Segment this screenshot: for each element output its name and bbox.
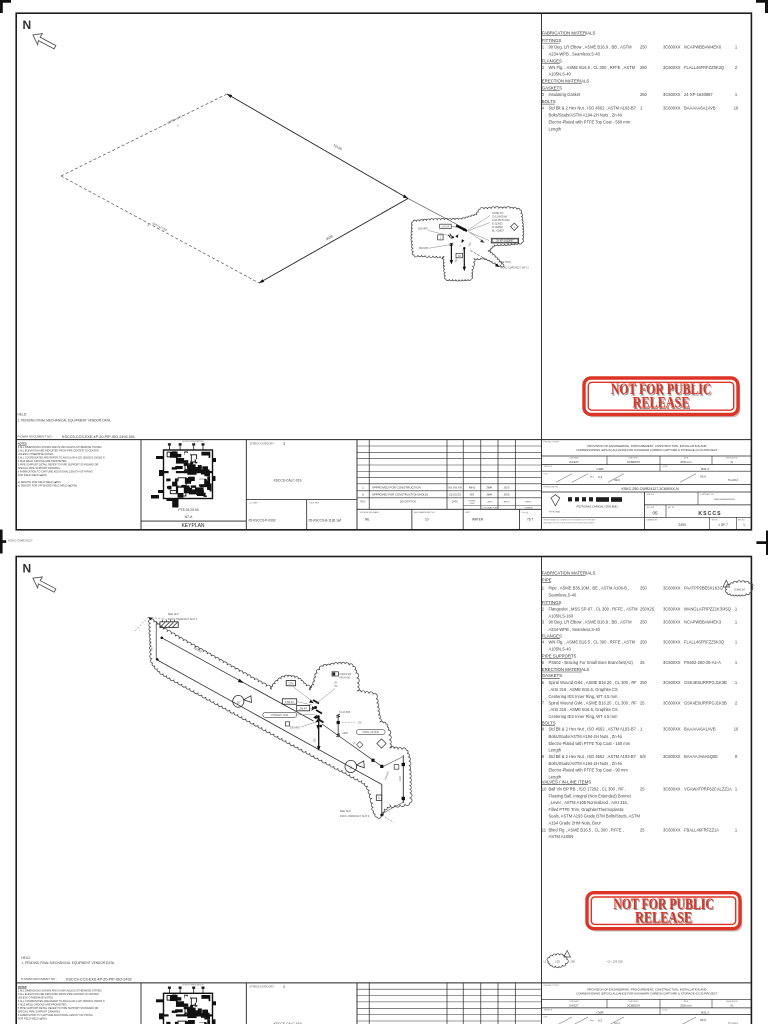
svg-text:Electro-Plated with PTFE Top C: Electro-Plated with PTFE Top Coat - 560 …	[549, 120, 631, 125]
svg-text:VR-24-002: VR-24-002	[339, 678, 351, 680]
svg-text:Std Blt & 2 Hex Nut , ISO 4662: Std Blt & 2 Hex Nut , ISO 4662 , ASTM A1…	[549, 727, 637, 732]
svg-text:FABRICATION MATERIALS: FABRICATION MATERIALS	[542, 571, 596, 576]
svg-text:250: 250	[640, 620, 648, 625]
svg-text:A6: A6	[458, 255, 462, 258]
svg-text:90 Deg. LR Elbow , ASME B16.9: 90 Deg. LR Elbow , ASME B16.9 , BB , AST…	[549, 620, 633, 625]
svg-text:<2> 125 250: <2> 125 250	[607, 960, 623, 964]
svg-text:SHT SIZE: SHT SIZE	[647, 507, 655, 509]
svg-text:SHT NO.: SHT NO.	[712, 519, 719, 521]
svg-text:FLALL46FRFZZ5K3Q: FLALL46FRFZZ5K3Q	[684, 640, 724, 645]
svg-text:CHKD: CHKD	[486, 502, 493, 504]
svg-text:N: N	[731, 460, 733, 464]
svg-text:250: 250	[640, 65, 648, 70]
svg-text:, AISI 316 , ASME B16.5, Graph: , AISI 316 , ASME B16.5, Graphite CS	[549, 707, 618, 712]
svg-text:MHJ: MHJ	[469, 486, 476, 490]
svg-text:b: b	[147, 223, 151, 227]
svg-text:3: 3	[283, 985, 285, 989]
svg-text:3C600XX: 3C600XX	[627, 460, 640, 464]
svg-text:<1: <1	[543, 960, 547, 964]
svg-text:VALVES / IN-LINE ITEMS: VALVES / IN-LINE ITEMS	[542, 780, 591, 785]
svg-text:APPROVED FOR CONSTRUCTION (HOL: APPROVED FOR CONSTRUCTION (HOLD)	[372, 493, 428, 497]
svg-text:ZSM: ZSM	[288, 683, 293, 686]
svg-text:Electro-Plated with PTFE Top C: Electro-Plated with PTFE Top Coat - 90 m…	[549, 768, 629, 773]
svg-text:10: 10	[542, 787, 547, 792]
svg-text:Filled PTFE Trim, Graphite/The: Filled PTFE Trim, Graphite/Thermoplastic	[549, 807, 624, 812]
svg-text:25: 25	[237, 700, 241, 704]
svg-text:A234-WPB , Seamless,S-40: A234-WPB , Seamless,S-40	[549, 627, 601, 632]
svg-text:XX.XX.XX: XX.XX.XX	[448, 486, 462, 490]
svg-text:1219: 1219	[399, 776, 402, 782]
svg-text:PAATPP2BE6X1K3G: PAATPP2BE6X1K3G	[684, 585, 723, 590]
svg-text:FABRICATION MATERIALS: FABRICATION MATERIALS	[542, 31, 596, 36]
svg-text:LV-104: LV-104	[442, 226, 450, 229]
svg-text:GASKETS: GASKETS	[542, 86, 562, 91]
svg-text:P0902_02/1649: P0902_02/1649	[363, 732, 380, 734]
svg-text:250-NPD: 250-NPD	[290, 727, 300, 730]
svg-text:NCAPWBBAW4EK3: NCAPWBBAW4EK3	[684, 620, 722, 625]
svg-text:N 124 583: N 124 583	[339, 711, 351, 714]
svg-text:ZM-4P: ZM-4P	[299, 708, 307, 711]
svg-text:05: 05	[652, 511, 658, 516]
svg-text:FOR FIELD WELD (■FW).: FOR FIELD WELD (■FW).	[18, 474, 48, 477]
svg-text:APPROVED FOR CONSTRUCTION: APPROVED FOR CONSTRUCTION	[372, 486, 421, 490]
svg-text:, AISI 316 , ASME B16.5, Graph: , AISI 316 , ASME B16.5, Graphite CS	[549, 687, 618, 692]
svg-text:P93609/C 1649: P93609/C 1649	[271, 714, 288, 717]
svg-text:2: 2	[542, 65, 545, 70]
svg-text:ERECTION MATERIALS: ERECTION MATERIALS	[542, 79, 590, 84]
svg-text:FLANGES: FLANGES	[542, 634, 562, 639]
svg-text:5: 5	[542, 660, 545, 665]
svg-text:24/127: 24/127	[569, 1003, 579, 1007]
svg-text:AND SHALL NOT BE COPIED WITHOU: AND SHALL NOT BE COPIED WITHOUT PRIOR WR…	[544, 521, 596, 524]
svg-text:UNIT: UNIT	[465, 512, 471, 514]
svg-text:BAAAAJA6A6Q0E: BAAAAJA6A6Q0E	[684, 754, 718, 759]
svg-text:2250: 2250	[343, 732, 349, 735]
svg-text:PROJECT TITLE: PROJECT TITLE	[544, 985, 560, 987]
svg-text:NIL: NIL	[365, 518, 370, 522]
svg-text:25: 25	[640, 660, 645, 665]
svg-text:3C600XX: 3C600XX	[663, 606, 681, 611]
svg-text:Spiral Wound Gskt , ASME B16.2: Spiral Wound Gskt , ASME B16.20 , CL 300…	[549, 680, 638, 685]
svg-text:Bolts/Studs/ASTM A194-2H Nuts: Bolts/Studs/ASTM A194-2H Nuts , Zn-Ni	[549, 734, 622, 739]
svg-text:250-NPD: 250-NPD	[385, 771, 390, 780]
svg-text:GASKETS: GASKETS	[542, 673, 562, 678]
svg-text:250: 250	[640, 640, 648, 645]
svg-text:A194 Grade 2HM Nuts, Bour: A194 Grade 2HM Nuts, Bour	[549, 821, 602, 826]
svg-text:STRESS CATEGORY :: STRESS CATEGORY :	[250, 986, 276, 989]
svg-text:PS602 - Bracing For Small Bore: PS602 - Bracing For Small Bore Branches(…	[549, 660, 634, 665]
svg-text:0.961 M: 0.961 M	[734, 587, 745, 591]
svg-text:3C600XX: 3C600XX	[663, 700, 681, 705]
svg-text:CWR: CWR	[596, 467, 604, 471]
svg-text:3C600XX: 3C600XX	[663, 787, 681, 792]
svg-text:b) DENOTE FOR OFFSHORE FIELD W: b) DENOTE FOR OFFSHORE FIELD WELD (■OFW)…	[18, 485, 78, 488]
svg-text:250: 250	[314, 737, 316, 742]
svg-text:BOLTS: BOLTS	[542, 721, 556, 726]
svg-text:UTS: UTS	[544, 473, 549, 475]
svg-text:25: 25	[640, 827, 645, 832]
svg-text:JGS: JGS	[504, 486, 510, 490]
svg-text:90 Deg. LR Elbow , ASME B16.9: 90 Deg. LR Elbow , ASME B16.9 , BB , AST…	[549, 45, 633, 50]
svg-text:FOR FIELD WELD (■FW).: FOR FIELD WELD (■FW).	[18, 1017, 48, 1020]
svg-text:12150: 12150	[332, 143, 342, 151]
svg-text:WN Flg. , ASME B16.5 , CL 300: WN Flg. , ASME B16.5 , CL 300 , RFFE , A…	[549, 65, 636, 70]
svg-text:8: 8	[542, 727, 545, 732]
svg-text:3C600XX: 3C600XX	[663, 620, 681, 625]
svg-text:25: 25	[349, 766, 353, 770]
svg-text:A105N,S-160: A105N,S-160	[549, 613, 574, 618]
svg-text:PIPING LINE NO: PIPING LINE NO	[544, 487, 559, 489]
svg-text:PETRONAS CARIGALI SDN BHD: PETRONAS CARIGALI SDN BHD	[577, 505, 618, 509]
svg-text:1: 1	[735, 787, 738, 792]
svg-text:Flangeolet , MSS SP-97 , CL 30: Flangeolet , MSS SP-97 , CL 300 , RFFE ,…	[549, 606, 639, 611]
svg-text:175: 175	[358, 721, 363, 724]
svg-text:N: N	[23, 18, 32, 32]
svg-text:250-NPD: 250-NPD	[419, 247, 429, 250]
svg-text:3: 3	[542, 92, 545, 97]
svg-text:JWK: JWK	[486, 493, 492, 497]
svg-text:250 mm: 250 mm	[680, 1003, 692, 1007]
svg-text:THE INFORMATION CONTAINED IN T: THE INFORMATION CONTAINED IN THIS DRAWIN…	[544, 519, 597, 522]
svg-text:N: N	[23, 561, 32, 575]
svg-text:KSCCS: KSCCS	[698, 511, 721, 517]
svg-text:B31.3: B31.3	[701, 467, 709, 471]
svg-text:2: 2	[735, 65, 738, 70]
svg-text:1. PENDING FINAL MECHANICAL EQ: 1. PENDING FINAL MECHANICAL EQUIPMENT VE…	[18, 419, 112, 423]
svg-text:RFP-0000000191/04: RFP-0000000191/04	[714, 499, 735, 501]
svg-text:KSKC-CWR24127 SHT 1: KSKC-CWR24127 SHT 1	[168, 617, 198, 621]
svg-text:KSKC-CWR24127: KSKC-CWR24127	[8, 539, 33, 543]
svg-text:A105N,S-40: A105N,S-40	[549, 647, 572, 652]
svg-text:S: S	[378, 797, 380, 800]
svg-text:ASTM A105N: ASTM A105N	[549, 834, 574, 839]
svg-text:JWK: JWK	[486, 486, 492, 490]
svg-text:HELD:: HELD:	[21, 956, 31, 960]
svg-text:3C600XX: 3C600XX	[663, 640, 681, 645]
svg-text:99.0: 99.0	[614, 478, 620, 482]
svg-text:1: 1	[440, 236, 442, 240]
svg-text:3C600XX: 3C600XX	[663, 660, 681, 665]
svg-text:1: 1	[735, 45, 738, 50]
svg-text:250-NPD: 250-NPD	[418, 228, 428, 231]
svg-text:COMMISSIONING (EPCIC) ALLIANCE: COMMISSIONING (EPCIC) ALLIANCE FOR KASAW…	[576, 448, 718, 452]
svg-text:Electro-Plated with PTFE Top C: Electro-Plated with PTFE Top Coat - 160 …	[549, 741, 631, 746]
svg-text:Floating Ball, Integral (Non E: Floating Ball, Integral (Non Extended) B…	[549, 794, 632, 799]
svg-text:6.2: 6.2	[598, 475, 603, 479]
svg-text:3C600XX: 3C600XX	[663, 45, 681, 50]
svg-text:250 mm: 250 mm	[680, 460, 692, 464]
svg-text:SERVICE: SERVICE	[544, 466, 553, 468]
svg-text:Blind Flg , ASME B16.5 , CL 30: Blind Flg , ASME B16.5 , CL 300 , RFFE ,	[549, 827, 624, 832]
svg-text:FITTINGS: FITTINGS	[542, 600, 562, 605]
svg-text:250: 250	[468, 241, 473, 247]
svg-text:3: 3	[542, 620, 545, 625]
svg-text:DESCRIPTION: DESCRIPTION	[400, 501, 417, 504]
svg-text:CODE: CODE	[662, 1009, 668, 1011]
svg-text:Spiral Wound Gskt , ASME B16.2: Spiral Wound Gskt , ASME B16.20 , CL 300…	[549, 700, 638, 705]
svg-text:Centering IES Inner Ring, WT: Centering IES Inner Ring, WT 4.5 mm	[549, 694, 618, 699]
svg-text:FBALL46FRFZZ1A: FBALL46FRFZZ1A	[684, 827, 719, 832]
svg-text:FLANGES: FLANGES	[542, 59, 562, 64]
svg-text:NC: NC	[334, 686, 338, 688]
svg-text:2: 2	[735, 700, 738, 705]
svg-text:1: 1	[735, 827, 738, 832]
svg-text:6: 6	[542, 680, 545, 685]
svg-text:PROJECT TITLE: PROJECT TITLE	[544, 442, 560, 444]
svg-text:Length: Length	[549, 127, 562, 132]
svg-text:3C600XX: 3C600XX	[663, 92, 681, 97]
svg-text:Bolts/Studs/ASTM A194-2H Nuts: Bolts/Studs/ASTM A194-2H Nuts , Zn-Ni	[549, 761, 622, 766]
svg-text:SEE SHT: SEE SHT	[340, 809, 352, 813]
svg-text:250X25: 250X25	[640, 606, 655, 611]
svg-text:TG-0/0.0: TG-0/0.0	[728, 478, 739, 482]
svg-text:VGAWATPRF62CALZZ1A: VGAWATPRF62CALZZ1A	[684, 787, 732, 792]
svg-text:250: 250	[570, 960, 575, 964]
svg-text:AS-DRAWN REF NO.: AS-DRAWN REF NO.	[414, 511, 436, 514]
svg-text:22.03.23: 22.03.23	[449, 493, 461, 497]
svg-text:7: 7	[542, 700, 545, 705]
svg-text:1: 1	[640, 727, 643, 732]
svg-text:4: 4	[542, 106, 545, 111]
svg-text:JGS: JGS	[504, 493, 510, 497]
svg-text:FILE REF: FILE REF	[310, 503, 320, 505]
svg-text:Std Blt & 2 Hex Nut , ISO 4662: Std Blt & 2 Hex Nut , ISO 4662 , ASTM A1…	[549, 754, 637, 759]
svg-text:x: x	[460, 245, 462, 248]
svg-text:BOLTS: BOLTS	[542, 99, 556, 104]
svg-text:NS: NS	[470, 493, 474, 497]
svg-text:EL +25827: EL +25827	[492, 229, 505, 232]
svg-text:N: N	[731, 1003, 733, 1007]
svg-text:Seamless,S-40: Seamless,S-40	[549, 593, 577, 598]
svg-text:24/127: 24/127	[569, 460, 579, 464]
svg-text:-75: -75	[353, 742, 357, 746]
svg-text:BAAAAA6A1AVB: BAAAAA6A1AVB	[684, 727, 716, 732]
svg-text:Rev: Rev	[590, 1020, 595, 1022]
svg-text:ORIG: ORIG	[469, 503, 475, 505]
svg-text:3C600XX: 3C600XX	[663, 65, 681, 70]
svg-text:CWR: CWR	[596, 1010, 604, 1014]
svg-text:REV NO.: REV NO.	[738, 519, 745, 521]
svg-text:2: 2	[542, 606, 545, 611]
svg-text:1: 1	[735, 680, 738, 685]
svg-text:KSKC-CWR24127 SHT 3: KSKC-CWR24127 SHT 3	[340, 814, 370, 818]
svg-text:8: 8	[735, 754, 738, 759]
svg-text:Par (g): Par (g)	[522, 511, 529, 514]
svg-text:CONTRACTOR: CONTRACTOR	[482, 506, 498, 509]
svg-text:KSCCS-CALC-019: KSCCS-CALC-019	[274, 479, 302, 483]
svg-text:1: 1	[514, 226, 516, 229]
svg-text:JOB NO.: JOB NO.	[647, 494, 655, 496]
svg-text:SERVICE: SERVICE	[544, 1009, 553, 1011]
svg-text:3C600XX: 3C600XX	[663, 585, 681, 590]
svg-text:RELEASE: RELEASE	[633, 395, 690, 412]
svg-text:Std Blt & 2 Hex Nut , ISO 4662: Std Blt & 2 Hex Nut , ISO 4662 , ASTM A1…	[549, 106, 637, 111]
svg-text:BAAAAA6A1AVB: BAAAAA6A1AVB	[684, 106, 716, 111]
svg-text:1: 1	[542, 585, 545, 590]
svg-text:16: 16	[734, 106, 739, 111]
svg-text:1. PENDING FINAL MECHANICAL EQ: 1. PENDING FINAL MECHANICAL EQUIPMENT VE…	[21, 961, 115, 965]
svg-text:1: 1	[640, 106, 643, 111]
svg-text:B31.3: B31.3	[701, 1010, 709, 1014]
svg-text:125: 125	[555, 960, 560, 964]
svg-text:SEE SHT: SEE SHT	[168, 612, 180, 616]
svg-text:NORTH ORIENTATION: NORTH ORIENTATION	[183, 984, 205, 987]
svg-text:KEYPLAN: KEYPLAN	[181, 523, 204, 529]
svg-text:9 904 E442: 9 904 E442	[339, 674, 351, 676]
svg-text:250: 250	[454, 257, 459, 263]
svg-text:GSK4E6URRPGJ1K3B: GSK4E6URRPGJ1K3B	[684, 700, 727, 705]
svg-text:25: 25	[334, 682, 337, 684]
svg-text:a: a	[176, 124, 179, 128]
svg-text:N7-A: N7-A	[185, 515, 193, 519]
svg-text:05-KSCCS-B-1136.1wf: 05-KSCCS-B-1136.1wf	[309, 519, 342, 523]
svg-text:15000: 15000	[193, 646, 203, 654]
svg-text:CONTRACT NO.: CONTRACT NO.	[700, 493, 715, 496]
svg-text:A234-WPB , Seamless,S-40: A234-WPB , Seamless,S-40	[549, 52, 601, 57]
svg-text:HELD:: HELD:	[18, 413, 28, 417]
svg-text:DRAWING NO.: DRAWING NO.	[647, 518, 659, 521]
svg-text:COMMISSIONING (EPCIC) ALLIANCE: COMMISSIONING (EPCIC) ALLIANCE FOR KASAW…	[576, 992, 718, 996]
svg-text:, Lever , ASTM A105 Normalized: , Lever , ASTM A105 Normalized , AISI 31…	[549, 800, 628, 805]
svg-text:KSCCS-CCS-EXE-4P-20-PIP-ISO-24: KSCCS-CCS-EXE-4P-20-PIP-ISO-2493	[66, 977, 132, 981]
svg-text:Centering IES Inner Ring, WT: Centering IES Inner Ring, WT 4.5 mm	[549, 714, 618, 719]
svg-text:65.0: 65.0	[700, 1018, 706, 1022]
svg-text:Rev: Rev	[590, 477, 595, 479]
svg-text:FITTINGS: FITTINGS	[542, 38, 562, 43]
svg-text:STRESS CATEGORY :: STRESS CATEGORY :	[250, 442, 276, 445]
svg-text:10: 10	[425, 518, 429, 522]
svg-text:STRESS RELEASE: STRESS RELEASE	[360, 511, 380, 514]
svg-text:PIPE: PIPE	[542, 578, 552, 583]
svg-text:75: 75	[152, 647, 154, 650]
svg-text:REV: REV	[361, 501, 366, 504]
svg-text:250: 250	[640, 585, 648, 590]
svg-text:3C600XX: 3C600XX	[627, 1003, 640, 1007]
svg-text:9: 9	[542, 754, 545, 759]
svg-text:FLALL46FRFZZ5K3Q: FLALL46FRFZZ5K3Q	[684, 65, 724, 70]
svg-text:Length: Length	[549, 748, 562, 753]
svg-text:1: 1	[735, 620, 738, 625]
svg-text:Seals, ASTM A193 Grade B7M Bol: Seals, ASTM A193 Grade B7M Bolts/Studs, …	[549, 814, 641, 819]
svg-text:CODE: CODE	[662, 466, 668, 468]
svg-text:16: 16	[734, 727, 739, 732]
svg-text:KSKC-CWR24127 SHT 2: KSKC-CWR24127 SHT 2	[501, 266, 530, 269]
svg-text:Insulating Gasket: Insulating Gasket	[549, 92, 581, 97]
svg-text:1: 1	[542, 45, 545, 50]
svg-text:3: 3	[283, 442, 285, 446]
svg-text:3C600XX: 3C600XX	[663, 106, 681, 111]
svg-text:APPD: APPD	[525, 501, 531, 504]
svg-text:Bolts/Studs/ASTM A194-2H Nuts: Bolts/Studs/ASTM A194-2H Nuts , Zn-Ni	[549, 113, 622, 118]
svg-text:1447-L2750: 1447-L2750	[151, 221, 167, 232]
svg-text:25: 25	[640, 700, 645, 705]
svg-text:ILL.REF: ILL.REF	[250, 503, 259, 505]
svg-text:PETRONAS: PETRONAS	[549, 511, 561, 514]
svg-text:PT8 15.20.03: PT8 15.20.03	[178, 508, 198, 512]
svg-text:Pipe , ASME B36.10M , BE , AST: Pipe , ASME B36.10M , BE , ASTM A106-B ,	[549, 585, 630, 590]
svg-text:3C600XX: 3C600XX	[663, 727, 681, 732]
svg-text:WATER: WATER	[472, 518, 484, 522]
svg-text:NORTH ORIENTATION: NORTH ORIENTATION	[183, 440, 205, 443]
svg-text:1: 1	[735, 92, 738, 97]
svg-text:65.0: 65.0	[700, 475, 706, 479]
svg-text:WN Flg. , ASME B16.5 , CL 300: WN Flg. , ASME B16.5 , CL 300 , RFFE , A…	[549, 640, 636, 645]
svg-text:OWNER: OWNER	[524, 507, 533, 509]
svg-text:6.2: 6.2	[598, 1018, 603, 1022]
svg-text:NCAPWBBAW4EK6: NCAPWBBAW4EK6	[684, 45, 722, 50]
svg-text:24-XP-1630887: 24-XP-1630887	[684, 92, 713, 97]
svg-text:1: 1	[735, 606, 738, 611]
svg-text:RELEASE: RELEASE	[635, 909, 692, 926]
svg-text:GSK4E6URRPGJ1K3B: GSK4E6URRPGJ1K3B	[684, 680, 727, 685]
svg-text:76.7: 76.7	[527, 518, 533, 522]
svg-text:KEY NO.: KEY NO.	[668, 507, 675, 509]
svg-text:11: 11	[542, 827, 547, 832]
svg-text:250: 250	[640, 92, 648, 97]
svg-text:1: 1	[735, 660, 738, 665]
svg-text:KSKC-250-CWR24127-3C600XX-N: KSKC-250-CWR24127-3C600XX-N	[621, 487, 679, 491]
svg-text:1 OF 7: 1 OF 7	[718, 523, 728, 527]
svg-text:APPD: APPD	[504, 501, 510, 504]
svg-text:250: 250	[640, 680, 648, 685]
svg-text:3C600XX: 3C600XX	[663, 827, 681, 832]
svg-text:PIPE SUPPORTS: PIPE SUPPORTS	[542, 653, 577, 658]
svg-text:1: 1	[743, 523, 745, 527]
svg-text:0: 0	[362, 493, 364, 497]
svg-text:9635: 9635	[325, 234, 334, 241]
svg-text:A105N,S-40: A105N,S-40	[549, 72, 572, 77]
svg-text:1: 1	[362, 486, 364, 490]
svg-text:Ball Vlv BP RB , ISO 17292 , C: Ball Vlv BP RB , ISO 17292 , CL 300 , RF…	[549, 787, 627, 792]
svg-text:2493: 2493	[678, 523, 686, 527]
svg-text:WANGLAFRPZZ1K3/45Q: WANGLAFRPZZ1K3/45Q	[684, 606, 731, 611]
svg-text:3C600XX: 3C600XX	[663, 680, 681, 685]
svg-text:KSCCS-CCS-EXE-4P-20-PIP-ISO-24: KSCCS-CCS-EXE-4P-20-PIP-ISO-2493-001	[62, 435, 135, 439]
svg-text:PS602-250-25-A2-A: PS602-250-25-A2-A	[684, 660, 721, 665]
svg-text:4: 4	[542, 640, 545, 645]
svg-text:(SEE SHT): (SEE SHT)	[499, 261, 512, 264]
svg-text:250: 250	[640, 45, 648, 50]
svg-text:5/8: 5/8	[640, 754, 646, 759]
svg-text:KSB-4P: KSB-4P	[285, 701, 294, 704]
svg-text:L2750-1447: L2750-1447	[166, 114, 182, 125]
svg-text:1: 1	[735, 640, 738, 645]
svg-text:25: 25	[640, 787, 645, 792]
svg-text:24-XP-1630887: 24-XP-1630887	[496, 240, 514, 243]
svg-text:P-DWM DOCUMENT NO :: P-DWM DOCUMENT NO :	[18, 435, 54, 439]
svg-text:DATE: DATE	[452, 501, 459, 504]
svg-text:05-KSCCS-P-0303: 05-KSCCS-P-0303	[249, 519, 276, 523]
svg-text:P-DWM DOCUMENT NO :: P-DWM DOCUMENT NO :	[21, 977, 57, 981]
svg-text:UTS: UTS	[544, 1017, 549, 1019]
svg-text:ERECTION MATERIALS: ERECTION MATERIALS	[542, 667, 590, 672]
svg-text:3C600XX: 3C600XX	[663, 754, 681, 759]
